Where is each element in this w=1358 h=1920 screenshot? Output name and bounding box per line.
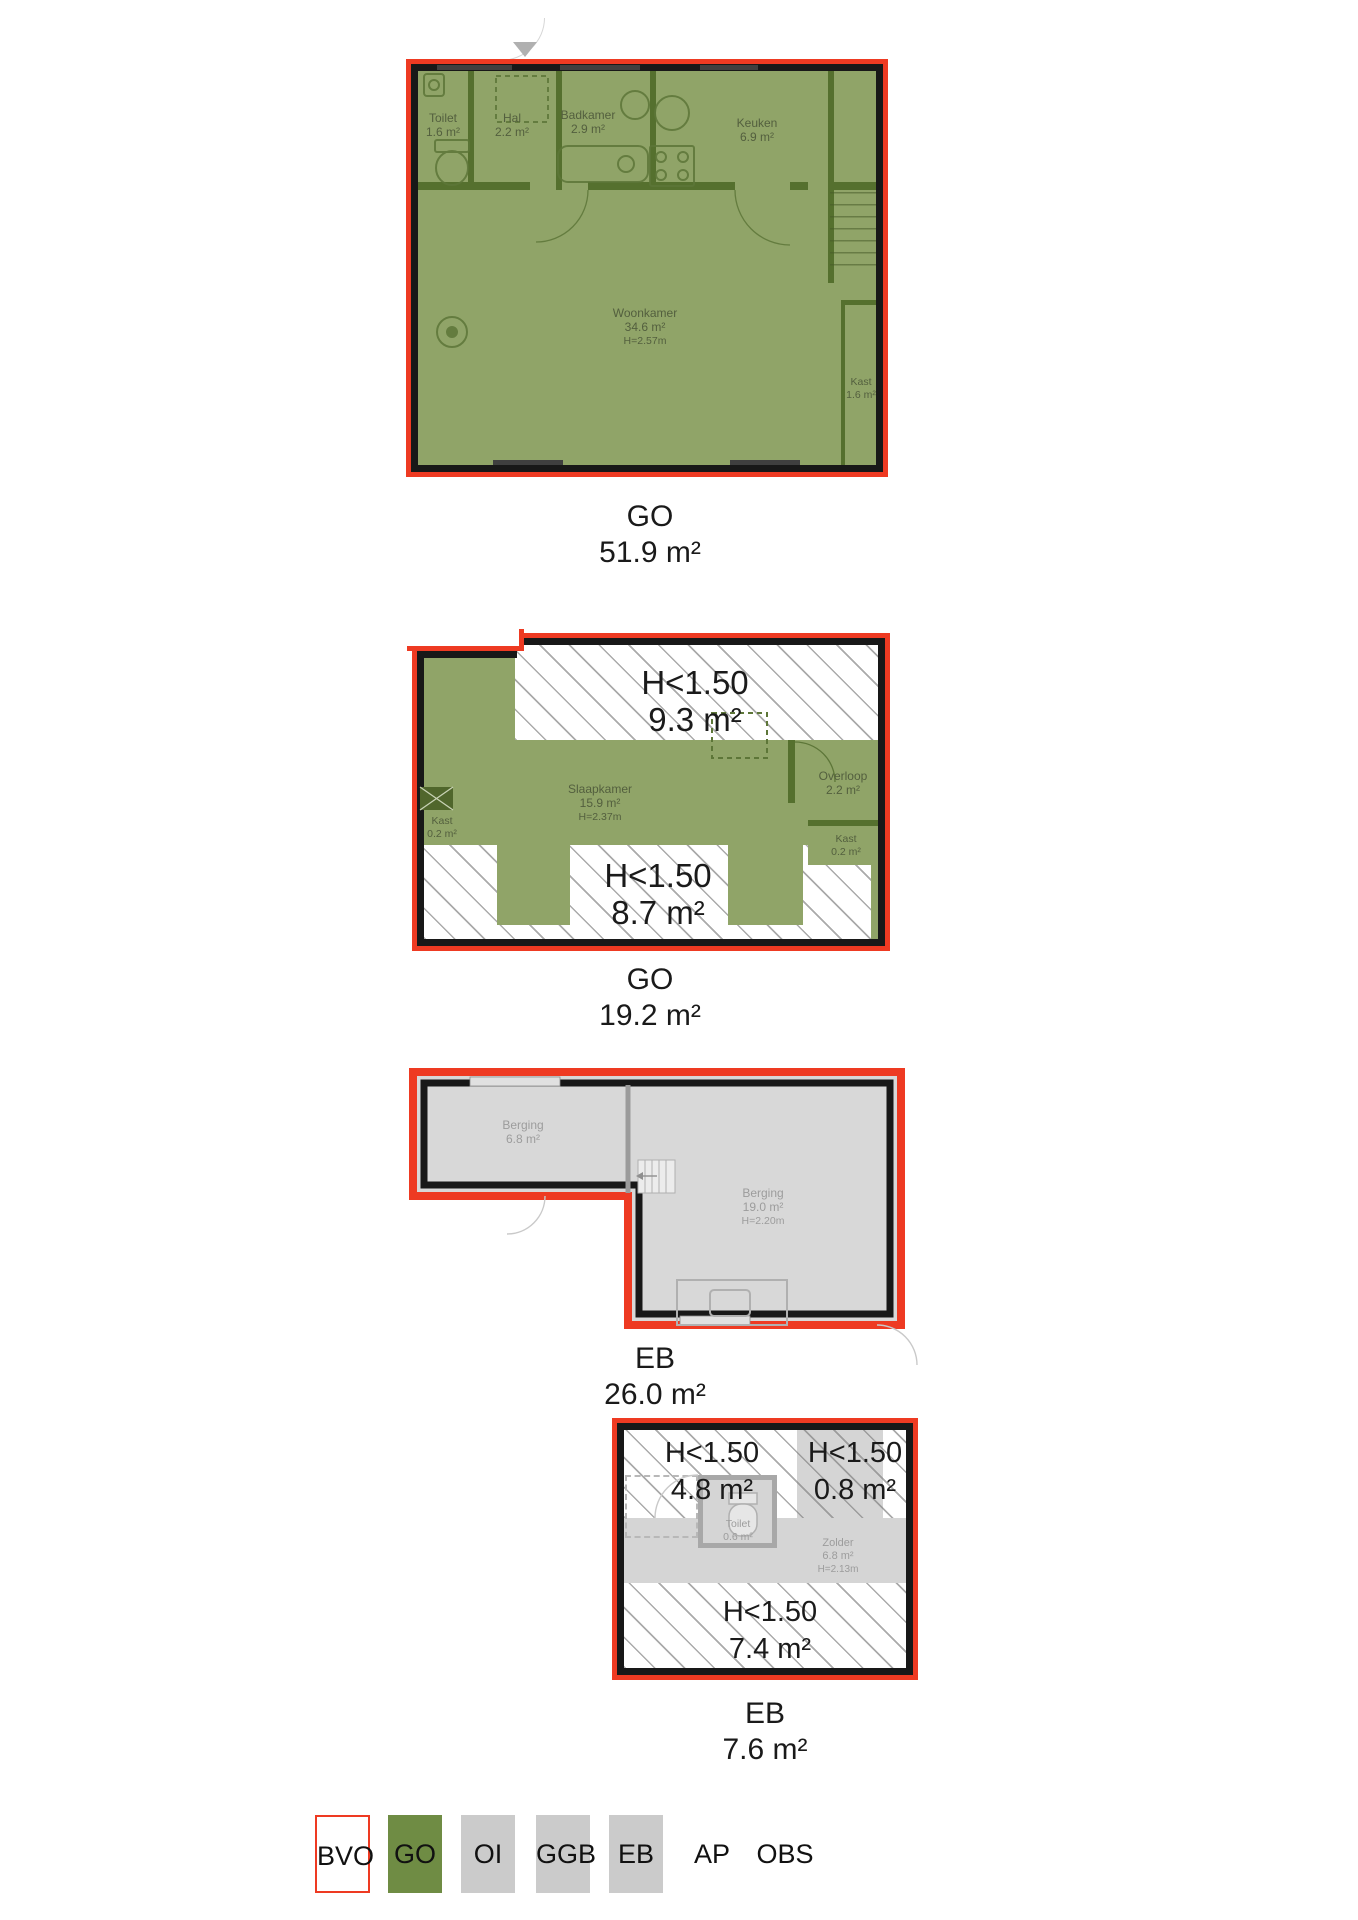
room-label-berging-large: Berging 19.0 m² H=2.20m bbox=[698, 1186, 828, 1228]
low-height-label: H<1.500.8 m² bbox=[760, 1435, 950, 1509]
surface-area: 19.2 m² bbox=[519, 998, 781, 1034]
low-height-label: H<1.508.7 m² bbox=[558, 857, 758, 931]
legend-item-obs: OBS bbox=[756, 1815, 814, 1893]
plan-second-floor: H<1.509.3 m² H<1.508.7 m² Slaapkamer 15.… bbox=[412, 633, 890, 951]
plan-first-floor: Toilet1.6 m² Hal2.2 m² Badkamer2.9 m² Ke… bbox=[406, 59, 888, 477]
legend-item-bvo: BVO bbox=[315, 1815, 370, 1893]
surface-tag: EB bbox=[524, 1341, 786, 1377]
surface-tag: GO bbox=[519, 499, 781, 535]
room-label-woonkamer: Woonkamer 34.6 m² H=2.57m bbox=[575, 306, 715, 348]
staircase bbox=[830, 192, 876, 276]
window bbox=[700, 65, 758, 70]
interior-wall bbox=[841, 300, 876, 305]
room-label-berging-small: Berging6.8 m² bbox=[463, 1118, 583, 1146]
floorplan-report-page: Toilet1.6 m² Hal2.2 m² Badkamer2.9 m² Ke… bbox=[0, 0, 1358, 1920]
entrance-arrow-icon bbox=[513, 42, 537, 57]
roof-step-cover bbox=[407, 629, 524, 651]
room-label-slaapkamer: Slaapkamer 15.9 m² H=2.37m bbox=[530, 782, 670, 824]
room-label-keuken: Keuken6.9 m² bbox=[717, 116, 797, 144]
low-height-label: H<1.509.3 m² bbox=[595, 664, 795, 738]
plan-first-floor-caption: GO 51.9 m² bbox=[519, 499, 781, 571]
room-label-zolder: Zolder 6.8 m² H=2.13m bbox=[788, 1537, 888, 1576]
door-opening bbox=[735, 182, 790, 190]
surface-area: 7.6 m² bbox=[634, 1732, 896, 1768]
surface-area: 26.0 m² bbox=[524, 1377, 786, 1413]
room-label-hal: Hal2.2 m² bbox=[480, 111, 544, 139]
room-label-kast: Kast1.6 m² bbox=[831, 376, 891, 401]
room-label-overloop: Overloop2.2 m² bbox=[798, 769, 888, 797]
legend-item-go: GO bbox=[388, 1815, 442, 1893]
legend-item-ap: AP bbox=[683, 1815, 741, 1893]
plan-storage-caption: EB 26.0 m² bbox=[524, 1341, 786, 1413]
room-label-kast-right: Kast0.2 m² bbox=[815, 833, 877, 858]
room-label-kast-left: Kast0.2 m² bbox=[411, 815, 473, 840]
legend-item-eb: EB bbox=[609, 1815, 663, 1893]
surface-tag: EB bbox=[634, 1696, 896, 1732]
window bbox=[730, 460, 800, 465]
low-height-label: H<1.507.4 m² bbox=[675, 1594, 865, 1668]
window bbox=[437, 65, 512, 70]
plan-second-floor-caption: GO 19.2 m² bbox=[519, 962, 781, 1034]
window bbox=[493, 460, 563, 465]
room-label-badkamer: Badkamer2.9 m² bbox=[548, 108, 628, 136]
room-label-toilet: Toilet0.6 m² bbox=[703, 1518, 773, 1543]
interior-wall bbox=[650, 71, 656, 190]
legend-item-oi: OI bbox=[461, 1815, 515, 1893]
legend-item-ggb: GGB bbox=[536, 1815, 590, 1893]
surface-tag: GO bbox=[519, 962, 781, 998]
plan-attic-caption: EB 7.6 m² bbox=[634, 1696, 896, 1768]
interior-wall bbox=[828, 182, 876, 190]
window bbox=[560, 65, 640, 70]
interior-wall bbox=[808, 820, 878, 826]
plan-attic: H<1.504.8 m² H<1.500.8 m² H<1.507.4 m² T… bbox=[612, 1418, 918, 1680]
surface-area: 51.9 m² bbox=[519, 535, 781, 571]
roof-step-wall bbox=[417, 651, 517, 658]
interior-wall bbox=[788, 740, 795, 803]
room-label-toilet: Toilet1.6 m² bbox=[411, 111, 475, 139]
